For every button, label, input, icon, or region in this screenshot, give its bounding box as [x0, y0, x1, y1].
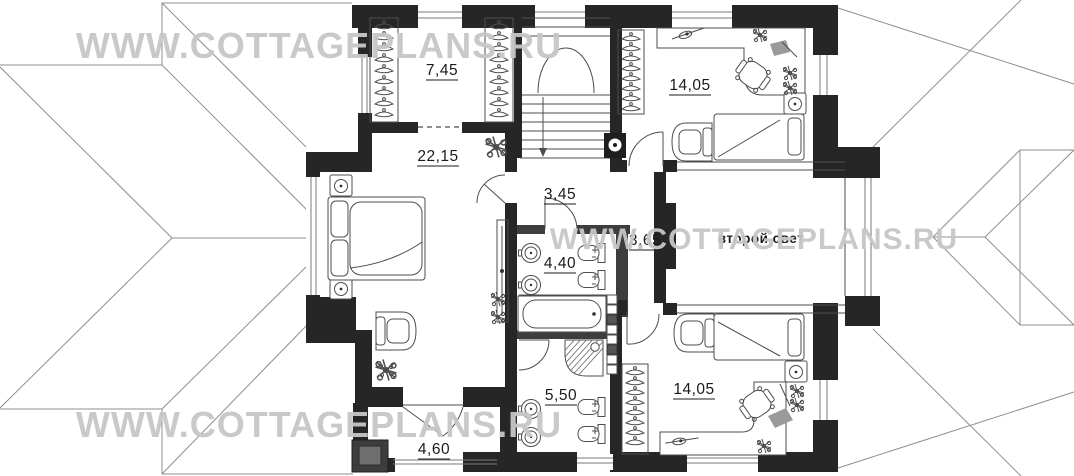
watermark-top: WWW.COTTAGEPLANS.RU — [76, 25, 562, 66]
watermark-middle: WWW.COTTAGEPLANS.RU — [550, 223, 958, 256]
floor-plan-canvas: 7,45 14,05 22,15 3,45 3,65 4,40 5,50 14,… — [0, 0, 1074, 476]
nightstand-icon — [330, 278, 352, 299]
room-area-bedroom-bottom: 14,05 — [673, 381, 714, 398]
room-area-bathroom: 4,40 — [544, 255, 576, 272]
toilet-icon — [578, 425, 605, 444]
armchair-icon — [376, 312, 416, 350]
room-area-shower-room: 5,50 — [545, 387, 577, 404]
armchair-icon — [674, 314, 714, 352]
bathtub-icon — [518, 296, 606, 332]
single-bed-icon — [714, 314, 804, 360]
room-area-hall: 3,45 — [544, 186, 576, 203]
room-area-bedroom-top: 14,05 — [669, 77, 710, 94]
double-bed-icon — [328, 197, 425, 280]
towel-radiator-icon — [607, 295, 617, 374]
floor-plan-page: 7,45 14,05 22,15 3,45 3,65 4,40 5,50 14,… — [0, 0, 1074, 476]
nightstand-icon — [330, 175, 352, 196]
watermark-bottom: WWW.COTTAGEPLANS.RU — [76, 404, 562, 445]
armchair-icon — [672, 123, 712, 161]
single-bed-icon — [714, 114, 804, 160]
toilet-icon — [578, 398, 605, 417]
nightstand-icon — [785, 361, 807, 382]
room-area-master-bedroom: 22,15 — [417, 148, 458, 165]
chimney-icon — [604, 133, 626, 158]
toilet-icon — [578, 271, 605, 290]
nightstand-icon — [784, 93, 806, 114]
